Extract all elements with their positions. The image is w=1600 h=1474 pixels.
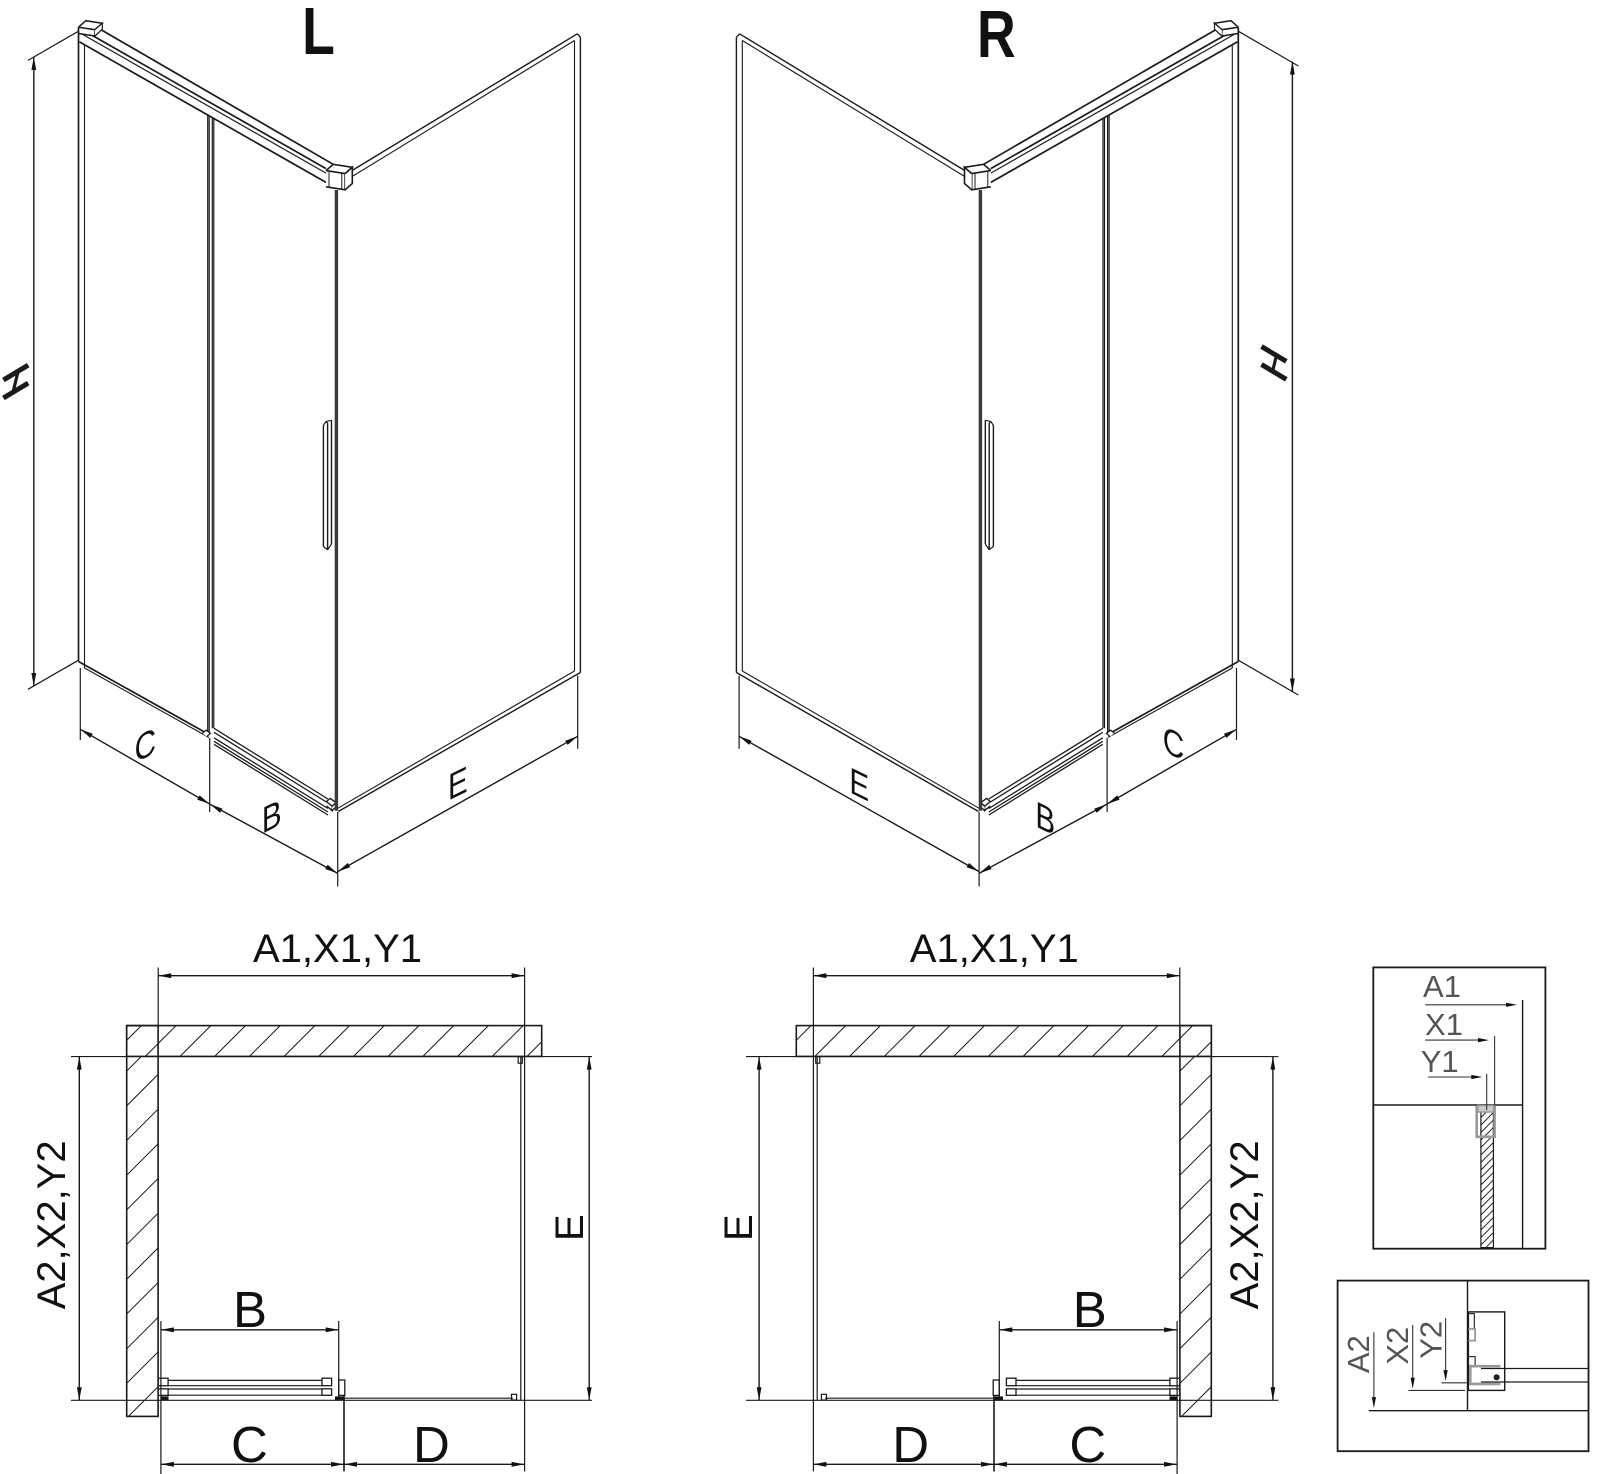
svg-text:X2: X2 — [1380, 1327, 1415, 1365]
svg-text:Y1: Y1 — [1421, 1044, 1459, 1079]
svg-text:A1,X1,Y1: A1,X1,Y1 — [910, 927, 1079, 971]
svg-text:D: D — [413, 1416, 450, 1473]
svg-text:A2,X2,Y2: A2,X2,Y2 — [30, 1140, 74, 1309]
svg-text:C: C — [1069, 1416, 1106, 1473]
svg-text:A1: A1 — [1423, 969, 1461, 1004]
svg-text:R: R — [977, 0, 1016, 71]
svg-text:E: E — [717, 1214, 761, 1241]
svg-text:X1: X1 — [1425, 1007, 1463, 1042]
svg-text:L: L — [302, 0, 335, 68]
svg-text:A1,X1,Y1: A1,X1,Y1 — [253, 927, 422, 971]
svg-text:A2: A2 — [1341, 1335, 1376, 1373]
svg-text:B: B — [233, 1281, 267, 1338]
svg-text:A2,X2,Y2: A2,X2,Y2 — [1223, 1140, 1267, 1309]
svg-text:B: B — [1073, 1281, 1107, 1338]
svg-text:Y2: Y2 — [1414, 1321, 1449, 1359]
svg-text:D: D — [892, 1416, 929, 1473]
svg-text:C: C — [231, 1416, 268, 1473]
svg-text:E: E — [548, 1214, 592, 1241]
